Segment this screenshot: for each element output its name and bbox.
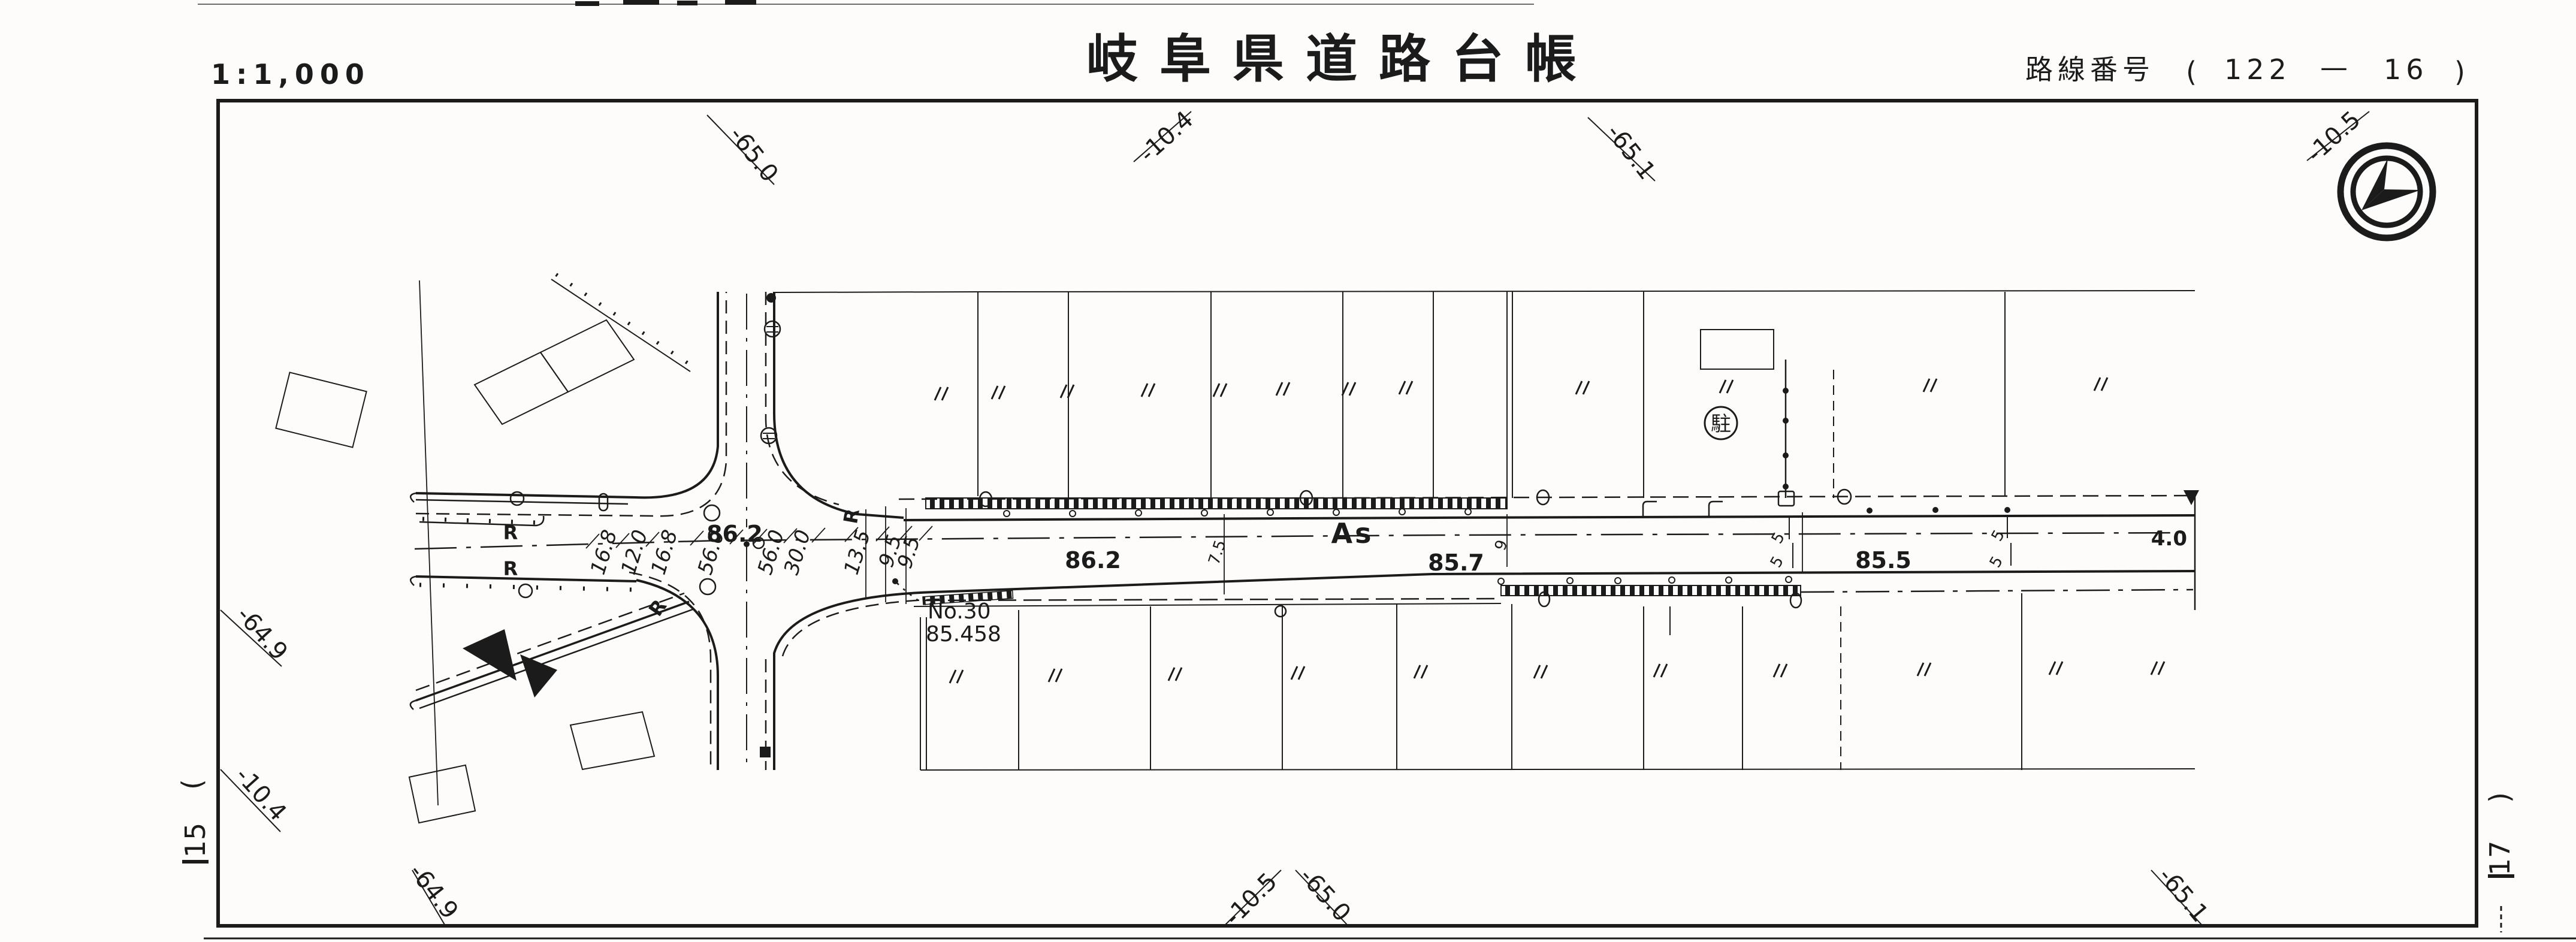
- grid-label-bottom-mid-2: -65.0: [1294, 862, 1355, 927]
- building-outline-nw-1: [475, 352, 568, 424]
- monument-south: [760, 747, 771, 757]
- south-leg-east-edge: [774, 592, 934, 770]
- route-number-prefix: 路線番号: [2025, 53, 2155, 86]
- arm-end-hooks: [410, 493, 416, 709]
- curve-label-2: R: [503, 557, 518, 580]
- left-sheet-paren: ): [177, 779, 210, 790]
- route-number-open-paren: (: [2186, 56, 2201, 88]
- grid-label-left-lower: -10.4: [229, 762, 291, 826]
- utility-symbols: [761, 321, 780, 443]
- grid-label-top-left: -65.0: [724, 122, 784, 188]
- grid-label-top-right-1: -65.1: [1601, 119, 1661, 185]
- width-label-5c: 5: [1988, 527, 2009, 544]
- elevation-west: 86.2: [1065, 547, 1121, 573]
- top-road-edge: [904, 515, 2195, 520]
- cadastral-boundary-west: [419, 280, 438, 805]
- elevation-east: 85.5: [1855, 547, 1911, 573]
- bottom-edge-point-circles: [1498, 576, 1792, 584]
- north-leg-east-edge: [774, 292, 904, 518]
- parking-symbol-text: 駐: [1711, 412, 1731, 436]
- parcel-same-owner-marks: [935, 378, 2164, 683]
- west-arm-south-edge: [416, 576, 636, 581]
- benchmark-name: No.30: [928, 599, 991, 624]
- right-sheet-paren: (: [2485, 792, 2517, 803]
- grid-label-left-upper: -64.9: [231, 601, 292, 666]
- scan-edge-marks: [575, 2, 756, 4]
- building-outline-west: [276, 372, 366, 447]
- south-boundary-dashdot: [1801, 590, 2193, 592]
- width-label-5d: 5: [1986, 553, 2007, 570]
- route-number-separator: —: [2320, 51, 2352, 83]
- drawing-frame: [198, 2, 2576, 938]
- building-outline-s: [409, 765, 475, 823]
- curve-label-4: R: [839, 507, 864, 526]
- right-sheet-number: 17: [2484, 841, 2516, 876]
- width-label-5a: 5: [1768, 529, 1789, 547]
- plan-labels: 16.8 12.0 16.8 56.0 56.0 30.0 13.5 9.5 9…: [503, 407, 2187, 647]
- scale-label: 1:1,000: [211, 58, 370, 90]
- elevation-mid: 85.7: [1428, 549, 1484, 576]
- north-arrow-compass-icon: [2341, 146, 2433, 238]
- road-end-marker: [2184, 490, 2199, 505]
- grid-label-top-mid: -10.4: [1134, 106, 1199, 168]
- top-edge-point-circles: [1004, 509, 1471, 517]
- building-outline-north: [1701, 330, 1774, 369]
- parcel-lines: [774, 291, 2195, 770]
- building-outline-nw-2: [540, 320, 634, 392]
- road-ledger-drawing: 1:1,000 岐阜県道路台帳 路線番号 ( 122 — 16 ) ) 15 (…: [0, 0, 2576, 942]
- grid-label-bottom-right: -65.1: [2152, 862, 2213, 928]
- grid-label-bottom-left: -64.9: [404, 859, 464, 925]
- north-leg-west-edge: [416, 292, 718, 497]
- width-label-7-5: 7.5: [1205, 538, 1230, 567]
- elevation-intersection: 86.2: [706, 521, 763, 547]
- pavement-type-label: As: [1331, 517, 1374, 549]
- curve-label-1: R: [503, 521, 518, 544]
- route-number-close-paren: ): [2454, 56, 2470, 88]
- benchmark-elevation: 85.458: [926, 622, 1001, 647]
- building-outline-sw: [570, 712, 654, 769]
- header: 1:1,000 岐阜県道路台帳 路線番号 ( 122 — 16 ): [211, 29, 2470, 90]
- dim-label-7: 13.5: [839, 527, 875, 578]
- benchmark-point: [892, 578, 898, 584]
- elevation-end: 4.0: [2151, 527, 2187, 551]
- route-number-branch: 16: [2384, 53, 2429, 86]
- width-label-9: 9: [1491, 538, 1512, 553]
- road-ledger-sheet: 1:1,000 岐阜県道路台帳 路線番号 ( 122 — 16 ) ) 15 (…: [0, 0, 2576, 942]
- parking-symbol: 駐: [1705, 407, 1737, 439]
- width-label-5b: 5: [1767, 553, 1787, 570]
- route-number-main: 122: [2224, 53, 2291, 86]
- top-edge-point-dots: [1867, 507, 2010, 514]
- monument-north: [766, 293, 776, 303]
- left-sheet-number: 15: [179, 823, 212, 858]
- curb-cuts: [1643, 502, 1723, 518]
- page-title: 岐阜県道路台帳: [1086, 29, 1598, 89]
- south-boundary-solid: [914, 603, 1501, 606]
